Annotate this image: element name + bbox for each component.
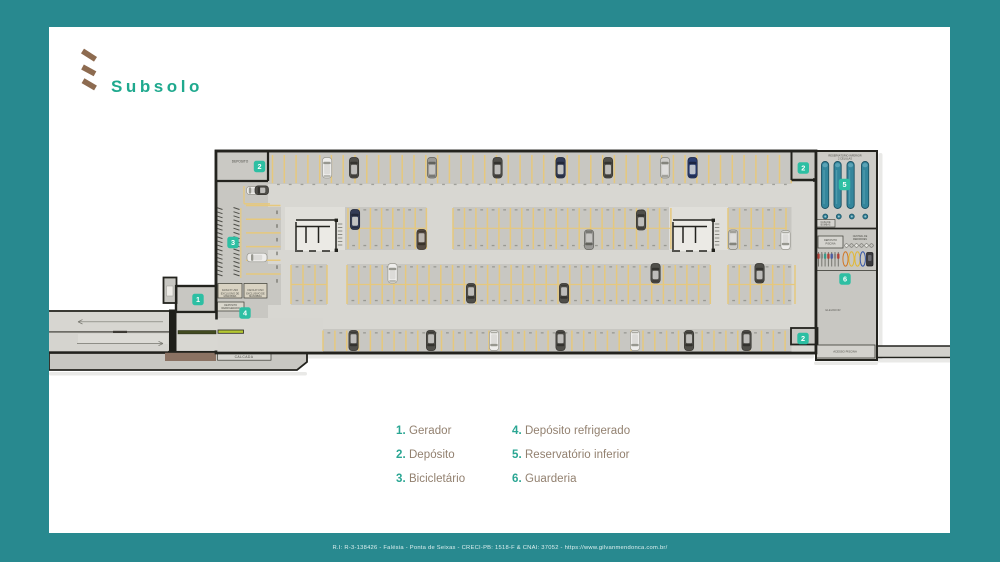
svg-text:CENTRAL DE: CENTRAL DE [853,235,868,238]
svg-text:REFRIGERADO: REFRIGERADO [222,307,240,310]
svg-text:ACESSO PISCINA: ACESSO PISCINA [833,350,857,354]
svg-text:3: 3 [231,238,235,247]
svg-text:BOMBAS: BOMBAS [821,224,831,227]
svg-text:MANOBRA: MANOBRA [249,295,262,298]
svg-text:2: 2 [801,334,805,343]
svg-text:ELEVADOR: ELEVADOR [825,308,840,312]
svg-text:CALCADA: CALCADA [235,355,254,359]
svg-text:1: 1 [196,295,200,304]
svg-text:PISCINA: PISCINA [825,242,835,245]
svg-text:CASA DE: CASA DE [821,221,831,224]
svg-text:5: 5 [842,180,846,189]
svg-text:2 CELULAS: 2 CELULAS [838,157,852,161]
svg-text:6: 6 [843,275,847,284]
svg-text:MEDIDORES: MEDIDORES [853,239,867,241]
svg-text:2: 2 [801,164,805,173]
svg-text:DEPOSITO: DEPOSITO [232,159,249,163]
svg-text:2: 2 [257,162,261,171]
svg-text:MANOBRA: MANOBRA [224,295,237,298]
